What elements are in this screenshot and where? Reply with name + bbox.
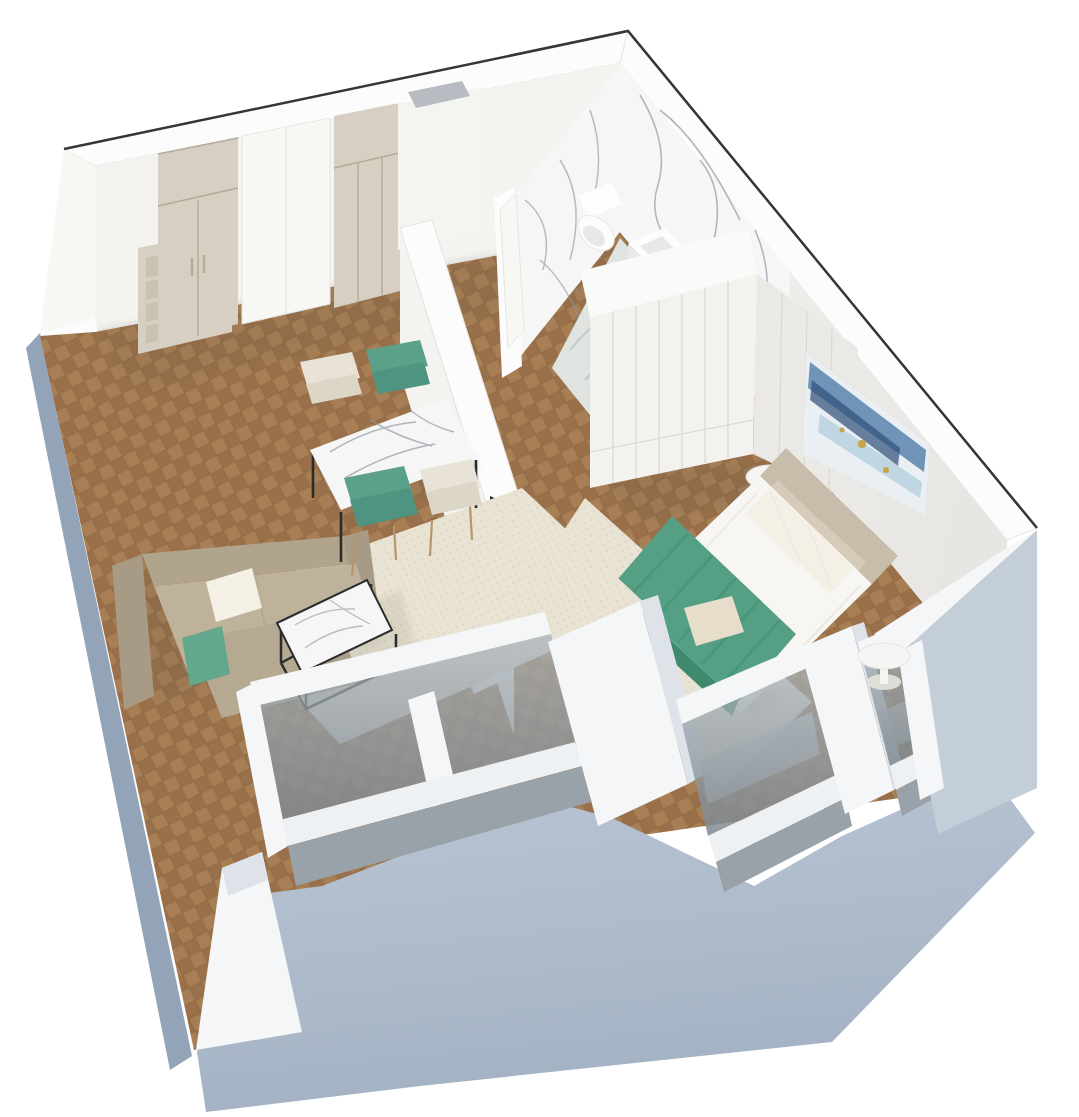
apartment-cutaway-scene — [0, 0, 1079, 1117]
artwork-gold-fleck — [858, 440, 866, 448]
floorplan-3d-render — [0, 0, 1079, 1117]
artwork-gold-fleck — [840, 428, 845, 433]
artwork-gold-fleck — [883, 467, 889, 473]
hall-wardrobe-b — [334, 102, 404, 308]
nightstand-right-top — [858, 643, 910, 669]
